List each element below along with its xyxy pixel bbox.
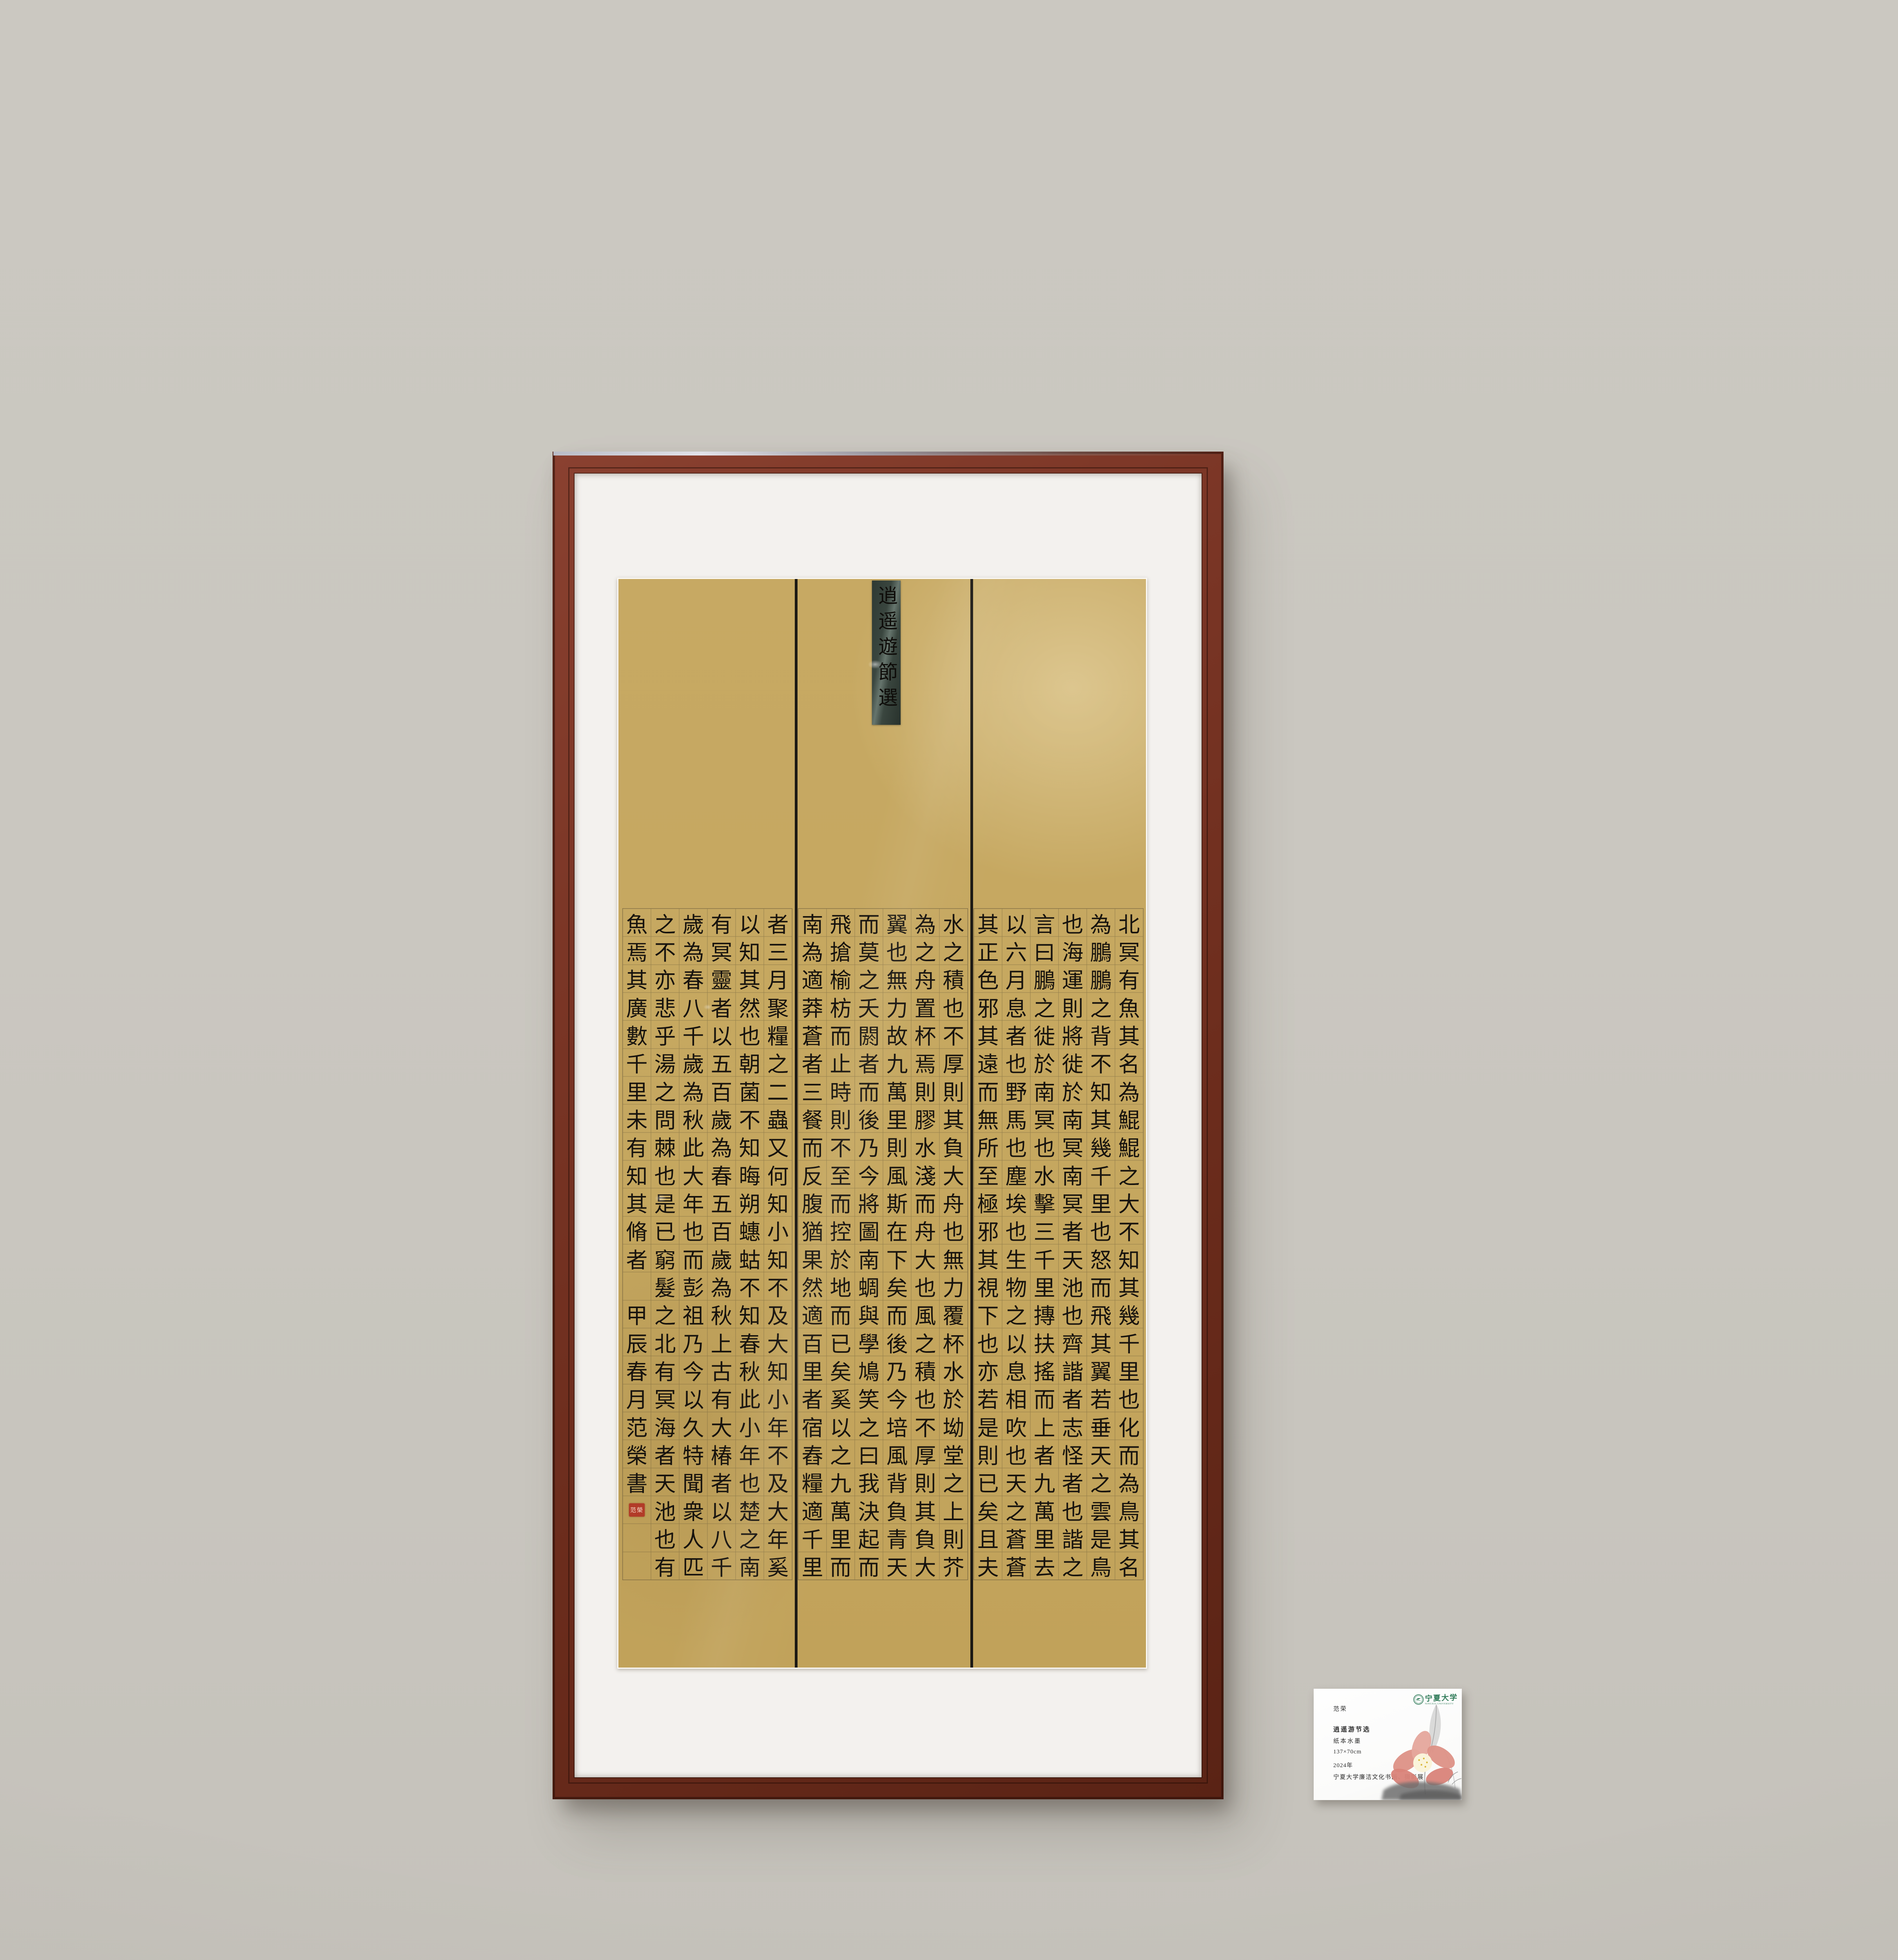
mat-board: 逍遥遊節選 者三月聚糧之二蟲又何知小知不及大知小年不及大年奚以知其然也朝菌不知晦… bbox=[575, 474, 1202, 1777]
calligraphy-char: 笑 bbox=[855, 1384, 883, 1412]
calligraphy-char: 有 bbox=[707, 909, 736, 936]
calligraphy-char: 鳥 bbox=[1115, 1496, 1143, 1524]
university-logo: 宁夏大学 NINGXIA UNIVERSITY bbox=[1413, 1694, 1458, 1706]
calligraphy-char: 而 bbox=[911, 1188, 939, 1216]
calligraphy-char: 大 bbox=[679, 1160, 707, 1188]
calligraphy-char: 乃 bbox=[855, 1132, 883, 1160]
calligraphy-char: 曰 bbox=[1030, 936, 1059, 964]
calligraphy-char: 遠 bbox=[974, 1049, 1002, 1076]
calligraphy-char: 其 bbox=[1115, 1524, 1143, 1552]
calligraphy-char: 舟 bbox=[911, 965, 939, 993]
calligraphy-char: 齊 bbox=[1059, 1328, 1087, 1356]
calligraphy-char: 也 bbox=[1002, 1216, 1030, 1244]
calligraphy-char: 莫 bbox=[855, 936, 883, 964]
calligraphy-char: 適 bbox=[798, 965, 827, 993]
calligraphy-char: 而 bbox=[827, 1300, 855, 1328]
panel-grid-right: 北冥有魚其名為鯤鯤之大不知其幾千里也化而為鳥其名為鵬鵬之背不知其幾千里也怒而飛其… bbox=[973, 908, 1144, 1580]
calligraphy-char: 糧 bbox=[798, 1468, 827, 1496]
calligraphy-char: 也 bbox=[1002, 1049, 1030, 1076]
calligraphy-char: 生 bbox=[1002, 1244, 1030, 1272]
calligraphy-char: 水 bbox=[939, 909, 968, 936]
calligraphy-char: 之 bbox=[911, 1328, 939, 1356]
calligraphy-char: 里 bbox=[827, 1524, 855, 1552]
calligraphy-char: 無 bbox=[974, 1104, 1002, 1132]
calligraphy-char: 夫 bbox=[974, 1552, 1002, 1580]
calligraphy-char: 矣 bbox=[974, 1496, 1002, 1524]
calligraphy-char: 五 bbox=[707, 1049, 736, 1076]
calligraphy-char: 水 bbox=[911, 1132, 939, 1160]
calligraphy-char: 楚 bbox=[736, 1496, 764, 1524]
calligraphy-char: 里 bbox=[1115, 1356, 1143, 1384]
calligraphy-char: 則 bbox=[939, 1524, 968, 1552]
calligraphy-char: 祖 bbox=[679, 1300, 707, 1328]
calligraphy-char: 鯤 bbox=[1115, 1104, 1143, 1132]
calligraphy-char: 鵬 bbox=[1087, 936, 1115, 964]
calligraphy-char: 知 bbox=[764, 1356, 792, 1384]
calligraphy-char: 厚 bbox=[939, 1049, 968, 1076]
calligraphy-char: 者 bbox=[855, 1049, 883, 1076]
calligraphy-char: 辰 bbox=[623, 1328, 651, 1356]
calligraphy-char: 其 bbox=[974, 1244, 1002, 1272]
calligraphy-char: 月 bbox=[764, 965, 792, 993]
calligraphy-char: 而 bbox=[827, 1020, 855, 1048]
calligraphy-char: 不 bbox=[764, 1440, 792, 1468]
calligraphy-char: 則 bbox=[939, 1076, 968, 1104]
calligraphy-char bbox=[623, 1524, 651, 1552]
calligraphy-char: 不 bbox=[1087, 1049, 1115, 1076]
calligraphy-char: 言 bbox=[1030, 909, 1059, 936]
calligraphy-char: 也 bbox=[1059, 1300, 1087, 1328]
calligraphy-char: 不 bbox=[764, 1272, 792, 1300]
calligraphy-char: 也 bbox=[911, 1272, 939, 1300]
calligraphy-char: 已 bbox=[651, 1216, 679, 1244]
calligraphy-char: 搖 bbox=[1030, 1356, 1059, 1384]
calligraphy-char: 埃 bbox=[1002, 1188, 1030, 1216]
calligraphy-char: 萬 bbox=[827, 1496, 855, 1524]
calligraphy-char: 九 bbox=[1030, 1468, 1059, 1496]
calligraphy-char: 餐 bbox=[798, 1104, 827, 1132]
calligraphy-char: 有 bbox=[651, 1356, 679, 1384]
calligraphy-char: 五 bbox=[707, 1188, 736, 1216]
calligraphy-char: 千 bbox=[1115, 1328, 1143, 1356]
calligraphy-char: 蒼 bbox=[1002, 1552, 1030, 1580]
calligraphy-char: 為 bbox=[679, 1076, 707, 1104]
card-dimensions: 137×70cm bbox=[1333, 1749, 1361, 1755]
calligraphy-char: 於 bbox=[939, 1384, 968, 1412]
calligraphy-char: 也 bbox=[1059, 1496, 1087, 1524]
calligraphy-char: 在 bbox=[883, 1216, 911, 1244]
calligraphy-char: 置 bbox=[911, 993, 939, 1020]
calligraphy-char: 甲 bbox=[623, 1300, 651, 1328]
calligraphy-char: 天 bbox=[1002, 1468, 1030, 1496]
calligraphy-char: 垂 bbox=[1087, 1412, 1115, 1440]
calligraphy-char: 蛄 bbox=[736, 1244, 764, 1272]
calligraphy-char: 地 bbox=[827, 1272, 855, 1300]
calligraphy-char: 水 bbox=[939, 1356, 968, 1384]
university-emblem-icon bbox=[1413, 1694, 1424, 1705]
calligraphy-char: 為 bbox=[911, 909, 939, 936]
calligraphy-char: 矣 bbox=[883, 1272, 911, 1300]
calligraphy-char: 者 bbox=[798, 1049, 827, 1076]
calligraphy-char: 風 bbox=[883, 1160, 911, 1188]
calligraphy-char: 積 bbox=[939, 965, 968, 993]
calligraphy-char: 也 bbox=[679, 1216, 707, 1244]
calligraphy-char: 及 bbox=[764, 1468, 792, 1496]
calligraphy-char: 幾 bbox=[1087, 1132, 1115, 1160]
calligraphy-char: 池 bbox=[651, 1496, 679, 1524]
calligraphy-char: 之 bbox=[764, 1049, 792, 1076]
gallery-wall: 逍遥遊節選 者三月聚糧之二蟲又何知小知不及大知小年不及大年奚以知其然也朝菌不知晦… bbox=[0, 0, 1898, 1960]
calligraphy-char: 而 bbox=[1115, 1440, 1143, 1468]
calligraphy-char: 也 bbox=[939, 993, 968, 1020]
panel-divider-right bbox=[970, 579, 973, 1668]
calligraphy-char: 窮 bbox=[651, 1244, 679, 1272]
calligraphy-char: 怒 bbox=[1087, 1244, 1115, 1272]
calligraphy-char: 其 bbox=[1087, 1328, 1115, 1356]
calligraphy-char: 者 bbox=[707, 1468, 736, 1496]
calligraphy-char: 極 bbox=[974, 1188, 1002, 1216]
frame-top-glint bbox=[553, 452, 1223, 456]
calligraphy-char: 飛 bbox=[827, 909, 855, 936]
calligraphy-char: 鯤 bbox=[1115, 1132, 1143, 1160]
calligraphy-char: 為 bbox=[1087, 909, 1115, 936]
calligraphy-char: 至 bbox=[974, 1160, 1002, 1188]
calligraphy-char: 舟 bbox=[939, 1188, 968, 1216]
calligraphy-char: 年 bbox=[764, 1412, 792, 1440]
calligraphy-char: 彭 bbox=[679, 1272, 707, 1300]
calligraphy-char: 秋 bbox=[707, 1300, 736, 1328]
calligraphy-char: 之 bbox=[1030, 993, 1059, 1020]
calligraphy-char: 力 bbox=[939, 1272, 968, 1300]
calligraphy-char: 三 bbox=[764, 936, 792, 964]
calligraphy-char: 冥 bbox=[1115, 936, 1143, 964]
calligraphy-char: 之 bbox=[939, 936, 968, 964]
calligraphy-char: 其 bbox=[1115, 1272, 1143, 1300]
calligraphy-char: 之 bbox=[651, 1300, 679, 1328]
calligraphy-char: 無 bbox=[883, 965, 911, 993]
calligraphy-char: 秋 bbox=[679, 1104, 707, 1132]
calligraphy-char: 去 bbox=[1030, 1552, 1059, 1580]
calligraphy-char: 之 bbox=[736, 1524, 764, 1552]
calligraphy-char: 而 bbox=[855, 909, 883, 936]
calligraphy-char: 髮 bbox=[651, 1272, 679, 1300]
calligraphy-char: 南 bbox=[1059, 1160, 1087, 1188]
calligraphy-char: 而 bbox=[679, 1244, 707, 1272]
calligraphy-char: 夭 bbox=[855, 993, 883, 1020]
calligraphy-char: 芥 bbox=[939, 1552, 968, 1580]
calligraphy-char: 春 bbox=[623, 1356, 651, 1384]
calligraphy-char: 果 bbox=[798, 1244, 827, 1272]
calligraphy-char: 負 bbox=[883, 1496, 911, 1524]
calligraphy-char: 以 bbox=[827, 1412, 855, 1440]
calligraphy-char: 悲 bbox=[651, 993, 679, 1020]
calligraphy-char: 名 bbox=[1115, 1552, 1143, 1580]
calligraphy-char: 六 bbox=[1002, 936, 1030, 964]
calligraphy-char: 里 bbox=[1087, 1188, 1115, 1216]
calligraphy-char: 邪 bbox=[974, 1216, 1002, 1244]
calligraphy-char: 棘 bbox=[651, 1132, 679, 1160]
calligraphy-char: 搶 bbox=[827, 936, 855, 964]
panel-grid-middle: 水之積也不厚則其負大舟也無力覆杯水於坳堂之上則芥為之舟置杯焉則膠水淺而舟大也風之… bbox=[798, 908, 968, 1580]
calligraphy-char: 菌 bbox=[736, 1076, 764, 1104]
calligraphy-char: 化 bbox=[1115, 1412, 1143, 1440]
calligraphy-char: 水 bbox=[1030, 1160, 1059, 1188]
calligraphy-char: 及 bbox=[764, 1300, 792, 1328]
calligraphy-char: 而 bbox=[883, 1300, 911, 1328]
calligraphy-char: 也 bbox=[736, 1020, 764, 1048]
calligraphy-char: 知 bbox=[764, 1244, 792, 1272]
calligraphy-char: 色 bbox=[974, 965, 1002, 993]
calligraphy-char bbox=[623, 1272, 651, 1300]
calligraphy-char: 天 bbox=[651, 1468, 679, 1496]
calligraphy-char: 知 bbox=[1087, 1076, 1115, 1104]
calligraphy-char: 風 bbox=[911, 1300, 939, 1328]
calligraphy-char: 正 bbox=[974, 936, 1002, 964]
calligraphy-char: 負 bbox=[939, 1132, 968, 1160]
calligraphy-char: 閼 bbox=[855, 1020, 883, 1048]
panel-grid-left: 者三月聚糧之二蟲又何知小知不及大知小年不及大年奚以知其然也朝菌不知晦朔蟪蛄不知春… bbox=[622, 908, 792, 1580]
calligraphy-char: 之 bbox=[855, 965, 883, 993]
calligraphy-char: 下 bbox=[974, 1300, 1002, 1328]
calligraphy-char: 又 bbox=[764, 1132, 792, 1160]
artist-seal: 范榮 bbox=[629, 1503, 645, 1517]
calligraphy-char: 千 bbox=[1087, 1160, 1115, 1188]
calligraphy-char: 時 bbox=[827, 1076, 855, 1104]
calligraphy-char: 飛 bbox=[1087, 1300, 1115, 1328]
calligraphy-char: 之 bbox=[651, 909, 679, 936]
calligraphy-char: 歲 bbox=[679, 1049, 707, 1076]
calligraphy-char: 野 bbox=[1002, 1076, 1030, 1104]
calligraphy-char: 不 bbox=[736, 1104, 764, 1132]
calligraphy-char: 里 bbox=[623, 1076, 651, 1104]
calligraphy-char: 諧 bbox=[1059, 1524, 1087, 1552]
calligraphy-char: 息 bbox=[1002, 1356, 1030, 1384]
calligraphy-char: 塵 bbox=[1002, 1160, 1030, 1188]
calligraphy-char: 冥 bbox=[1059, 1188, 1087, 1216]
calligraphy-char: 上 bbox=[707, 1328, 736, 1356]
calligraphy-char: 徙 bbox=[1059, 1049, 1087, 1076]
calligraphy-char: 南 bbox=[855, 1244, 883, 1272]
calligraphy-char: 冥 bbox=[651, 1384, 679, 1412]
calligraphy-char: 奚 bbox=[764, 1552, 792, 1580]
calligraphy-char: 者 bbox=[1059, 1384, 1087, 1412]
artwork-frame: 逍遥遊節選 者三月聚糧之二蟲又何知小知不及大知小年不及大年奚以知其然也朝菌不知晦… bbox=[553, 452, 1224, 1799]
calligraphy-char: 鵬 bbox=[1087, 965, 1115, 993]
calligraphy-char: 上 bbox=[939, 1496, 968, 1524]
calligraphy-char: 之 bbox=[1087, 1468, 1115, 1496]
calligraphy-char: 後 bbox=[855, 1104, 883, 1132]
calligraphy-char: 大 bbox=[911, 1552, 939, 1580]
calligraphy-char: 則 bbox=[974, 1440, 1002, 1468]
calligraphy-char: 冥 bbox=[707, 936, 736, 964]
calligraphy-char: 湯 bbox=[651, 1049, 679, 1076]
calligraphy-char: 決 bbox=[855, 1496, 883, 1524]
calligraphy-char: 靈 bbox=[707, 965, 736, 993]
card-artist-name: 范荣 bbox=[1333, 1704, 1347, 1713]
calligraphy-char: 今 bbox=[679, 1356, 707, 1384]
calligraphy-char: 腹 bbox=[798, 1188, 827, 1216]
calligraphy-char: 為 bbox=[679, 936, 707, 964]
calligraphy-char: 風 bbox=[883, 1440, 911, 1468]
panel-divider-left bbox=[795, 579, 798, 1668]
calligraphy-char: 書 bbox=[623, 1468, 651, 1496]
calligraphy-char: 也 bbox=[1115, 1384, 1143, 1412]
calligraphy-char: 二 bbox=[764, 1076, 792, 1104]
calligraphy-char: 小 bbox=[736, 1412, 764, 1440]
card-artwork-title: 逍遥游节选 bbox=[1333, 1724, 1370, 1733]
calligraphy-char: 為 bbox=[798, 936, 827, 964]
calligraphy-char: 知 bbox=[736, 1300, 764, 1328]
calligraphy-char: 莽 bbox=[798, 993, 827, 1020]
calligraphy-char: 八 bbox=[679, 993, 707, 1020]
calligraphy-char: 後 bbox=[883, 1328, 911, 1356]
calligraphy-char: 蒼 bbox=[1002, 1524, 1030, 1552]
calligraphy-char: 之 bbox=[651, 1076, 679, 1104]
calligraphy-char: 舟 bbox=[911, 1216, 939, 1244]
calligraphy-char: 適 bbox=[798, 1300, 827, 1328]
calligraphy-char: 怪 bbox=[1059, 1440, 1087, 1468]
calligraphy-char: 力 bbox=[883, 993, 911, 1020]
calligraphy-char: 天 bbox=[1087, 1440, 1115, 1468]
calligraphy-char: 不 bbox=[1115, 1216, 1143, 1244]
calligraphy-char: 者 bbox=[1059, 1468, 1087, 1496]
calligraphy-char: 有 bbox=[707, 1384, 736, 1412]
calligraphy-char: 然 bbox=[798, 1272, 827, 1300]
calligraphy-char: 而 bbox=[974, 1076, 1002, 1104]
calligraphy-char: 之 bbox=[1087, 993, 1115, 1020]
calligraphy-char: 有 bbox=[623, 1132, 651, 1160]
calligraphy-char: 摶 bbox=[1030, 1300, 1059, 1328]
calligraphy-char: 然 bbox=[736, 993, 764, 1020]
calligraphy-char: 千 bbox=[1030, 1244, 1059, 1272]
calligraphy-char: 則 bbox=[883, 1132, 911, 1160]
calligraphy-char: 將 bbox=[855, 1188, 883, 1216]
calligraphy-char: 培 bbox=[883, 1412, 911, 1440]
calligraphy-char: 已 bbox=[974, 1468, 1002, 1496]
calligraphy-char: 奚 bbox=[827, 1384, 855, 1412]
calligraphy-char: 負 bbox=[911, 1524, 939, 1552]
calligraphy-char: 已 bbox=[827, 1328, 855, 1356]
calligraphy-char: 千 bbox=[707, 1552, 736, 1580]
calligraphy-char: 徙 bbox=[1030, 1020, 1059, 1048]
calligraphy-char: 何 bbox=[764, 1160, 792, 1188]
calligraphy-char: 池 bbox=[1059, 1272, 1087, 1300]
calligraphy-char: 亦 bbox=[651, 965, 679, 993]
calligraphy-char: 萬 bbox=[1030, 1496, 1059, 1524]
calligraphy-char: 覆 bbox=[939, 1300, 968, 1328]
calligraphy-char: 秋 bbox=[736, 1356, 764, 1384]
calligraphy-char: 厚 bbox=[911, 1440, 939, 1468]
calligraphy-char: 百 bbox=[707, 1216, 736, 1244]
calligraphy-char: 范榮 bbox=[623, 1496, 651, 1524]
calligraphy-char: 不 bbox=[736, 1272, 764, 1300]
calligraphy-char: 若 bbox=[974, 1384, 1002, 1412]
calligraphy-char: 大 bbox=[939, 1160, 968, 1188]
calligraphy-char: 大 bbox=[707, 1412, 736, 1440]
calligraphy-char: 其 bbox=[974, 909, 1002, 936]
calligraphy-char: 天 bbox=[1059, 1244, 1087, 1272]
calligraphy-char: 而 bbox=[827, 1188, 855, 1216]
calligraphy-char: 問 bbox=[651, 1104, 679, 1132]
calligraphy-char: 者 bbox=[651, 1440, 679, 1468]
calligraphy-char: 控 bbox=[827, 1216, 855, 1244]
calligraphy-char: 吹 bbox=[1002, 1412, 1030, 1440]
calligraphy-char: 南 bbox=[1059, 1104, 1087, 1132]
calligraphy-char: 故 bbox=[883, 1020, 911, 1048]
calligraphy-char: 也 bbox=[911, 1384, 939, 1412]
calligraphy-char: 青 bbox=[883, 1524, 911, 1552]
calligraphy-char: 之 bbox=[855, 1412, 883, 1440]
calligraphy-char: 蟲 bbox=[764, 1104, 792, 1132]
label-card: 范荣 宁夏大学 NINGXIA UNIVERSITY 逍遥游节选 纸本水墨 13… bbox=[1314, 1689, 1462, 1800]
calligraphy-char: 南 bbox=[736, 1552, 764, 1580]
calligraphy-char: 幾 bbox=[1115, 1300, 1143, 1328]
calligraphy-char: 小 bbox=[764, 1216, 792, 1244]
calligraphy-char: 背 bbox=[883, 1468, 911, 1496]
calligraphy-char: 與 bbox=[855, 1300, 883, 1328]
calligraphy-char: 其 bbox=[1087, 1104, 1115, 1132]
calligraphy-char: 蟪 bbox=[736, 1216, 764, 1244]
calligraphy-char: 其 bbox=[939, 1104, 968, 1132]
calligraphy-char: 為 bbox=[1115, 1076, 1143, 1104]
calligraphy-char: 於 bbox=[1030, 1049, 1059, 1076]
calligraphy-char: 歲 bbox=[679, 909, 707, 936]
calligraphy-char: 舂 bbox=[798, 1440, 827, 1468]
calligraphy-char: 運 bbox=[1059, 965, 1087, 993]
card-year: 2024年 bbox=[1333, 1761, 1353, 1769]
calligraphy-char: 不 bbox=[827, 1132, 855, 1160]
calligraphy-char: 糧 bbox=[764, 1020, 792, 1048]
calligraphy-char: 大 bbox=[764, 1496, 792, 1524]
calligraphy-char: 南 bbox=[1030, 1076, 1059, 1104]
calligraphy-char: 而 bbox=[798, 1132, 827, 1160]
calligraphy-char: 斯 bbox=[883, 1188, 911, 1216]
calligraphy-char: 者 bbox=[1002, 1020, 1030, 1048]
calligraphy-char: 至 bbox=[827, 1160, 855, 1188]
calligraphy-char: 圖 bbox=[855, 1216, 883, 1244]
calligraphy-char: 小 bbox=[764, 1384, 792, 1412]
calligraphy-char: 蜩 bbox=[855, 1272, 883, 1300]
calligraphy-char: 朔 bbox=[736, 1188, 764, 1216]
calligraphy-char: 邪 bbox=[974, 993, 1002, 1020]
calligraphy-char: 則 bbox=[827, 1104, 855, 1132]
calligraphy-char: 未 bbox=[623, 1104, 651, 1132]
calligraphy-char: 曰 bbox=[855, 1440, 883, 1468]
calligraphy-char: 大 bbox=[764, 1328, 792, 1356]
calligraphy-char: 魚 bbox=[1115, 993, 1143, 1020]
calligraphy-char: 反 bbox=[798, 1160, 827, 1188]
calligraphy-char: 歲 bbox=[707, 1244, 736, 1272]
calligraphy-char: 聚 bbox=[764, 993, 792, 1020]
calligraphy-char: 於 bbox=[827, 1244, 855, 1272]
calligraphy-char: 大 bbox=[911, 1244, 939, 1272]
calligraphy-char: 翼 bbox=[1087, 1356, 1115, 1384]
calligraphy-char: 翼 bbox=[883, 909, 911, 936]
calligraphy-char: 知 bbox=[736, 1132, 764, 1160]
calligraphy-char: 杯 bbox=[911, 1020, 939, 1048]
calligraphy-char: 其 bbox=[623, 965, 651, 993]
calligraphy-char: 無 bbox=[939, 1244, 968, 1272]
calligraphy-char: 年 bbox=[679, 1188, 707, 1216]
calligraphy-char: 下 bbox=[883, 1244, 911, 1272]
calligraphy-char: 其 bbox=[974, 1020, 1002, 1048]
calligraphy-char: 不 bbox=[911, 1412, 939, 1440]
title-slip-text: 逍遥遊節選 bbox=[872, 585, 901, 725]
calligraphy-paper: 逍遥遊節選 者三月聚糧之二蟲又何知小知不及大知小年不及大年奚以知其然也朝菌不知晦… bbox=[617, 578, 1147, 1669]
calligraphy-char: 起 bbox=[855, 1524, 883, 1552]
calligraphy-char: 淺 bbox=[911, 1160, 939, 1188]
calligraphy-char: 百 bbox=[707, 1076, 736, 1104]
